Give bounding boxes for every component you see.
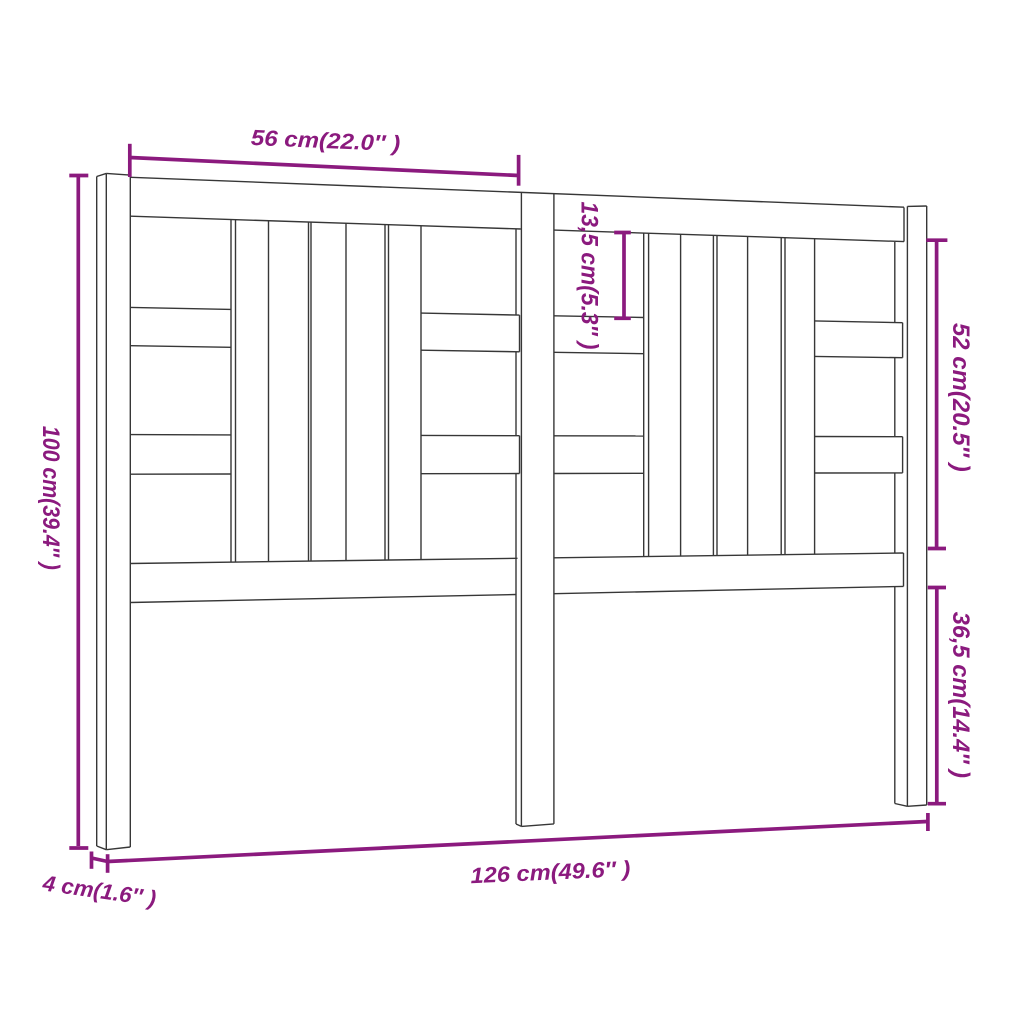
svg-text:36,5 cm(14.4″ ): 36,5 cm(14.4″ ) [947, 612, 974, 778]
svg-text:126 cm(49.6″ ): 126 cm(49.6″ ) [470, 856, 631, 888]
svg-text:100 cm(39.4″ ): 100 cm(39.4″ ) [37, 426, 64, 570]
svg-text:13,5 cm(5.3″ ): 13,5 cm(5.3″ ) [575, 202, 602, 350]
svg-text:56 cm(22.0″ ): 56 cm(22.0″ ) [250, 125, 400, 156]
svg-text:52 cm(20.5″ ): 52 cm(20.5″ ) [947, 323, 974, 472]
svg-text:4 cm(1.6″ ): 4 cm(1.6″ ) [40, 870, 157, 911]
